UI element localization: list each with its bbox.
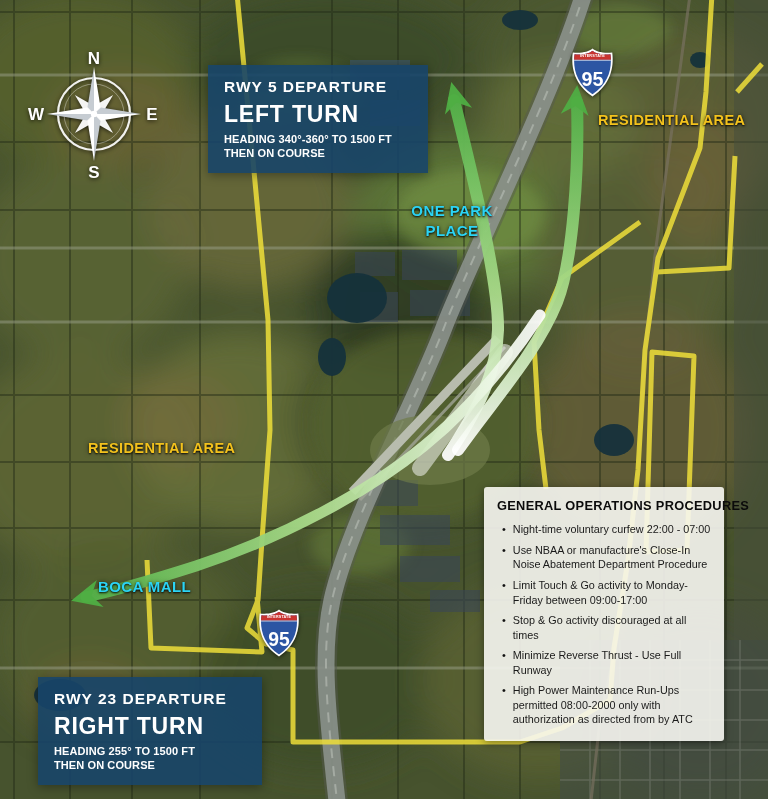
rwy23-heading-instruction: HEADING 255° TO 1500 FT (54, 745, 246, 757)
rwy5-turn-direction: LEFT TURN (224, 101, 412, 128)
compass-south-label: S (88, 163, 99, 182)
compass-north-label: N (88, 49, 100, 68)
rwy5-departure-panel: RWY 5 DEPARTURE LEFT TURN HEADING 340°-3… (208, 65, 428, 173)
route-number: 95 (268, 629, 290, 650)
procedures-title: GENERAL OPERATIONS PROCEDURES (497, 498, 712, 513)
bullet-icon: • (502, 578, 506, 593)
bullet-icon: • (502, 648, 506, 663)
route-number: 95 (582, 68, 604, 90)
boca-mall-label: BOCA MALL (98, 578, 191, 595)
compass-rose: N E S W (19, 39, 169, 189)
bullet-icon: • (502, 522, 506, 537)
procedure-item: • Stop & Go activity discouraged at all … (497, 613, 712, 642)
procedure-item: • Minimize Reverse Thrust - Use Full Run… (497, 648, 712, 677)
residential-area-label-left: RESIDENTIAL AREA (88, 440, 235, 456)
one-park-place-line1: ONE PARK (392, 201, 512, 221)
rwy5-title: RWY 5 DEPARTURE (224, 78, 412, 96)
procedure-text: Use NBAA or manufacture's Close-In Noise… (513, 543, 712, 572)
residential-area-label-right: RESIDENTIAL AREA (598, 112, 745, 128)
bullet-icon: • (502, 543, 506, 558)
compass-east-label: E (146, 105, 157, 124)
procedure-item: • High Power Maintenance Run-Ups permitt… (497, 683, 712, 727)
interstate-95-shield: INTERSTATE 95 (569, 47, 616, 98)
rwy5-heading-instruction: HEADING 340°-360° TO 1500 FT (224, 133, 412, 145)
procedure-item: • Limit Touch & Go activity to Monday-Fr… (497, 578, 712, 607)
one-park-place-label: ONE PARK PLACE (392, 201, 512, 242)
general-operations-procedures-panel: GENERAL OPERATIONS PROCEDURES • Night-ti… (484, 487, 724, 741)
rwy23-departure-panel: RWY 23 DEPARTURE RIGHT TURN HEADING 255°… (38, 677, 262, 785)
one-park-place-line2: PLACE (392, 221, 512, 241)
rwy5-course-instruction: THEN ON COURSE (224, 147, 412, 159)
rwy23-title: RWY 23 DEPARTURE (54, 690, 246, 708)
interstate-95-shield: INTERSTATE 95 (256, 607, 302, 659)
rwy23-course-instruction: THEN ON COURSE (54, 759, 246, 771)
procedure-text: Stop & Go activity discouraged at all ti… (513, 613, 712, 642)
procedure-text: High Power Maintenance Run-Ups permitted… (513, 683, 712, 727)
procedure-item: • Night-time voluntary curfew 22:00 - 07… (497, 522, 712, 537)
procedure-item: • Use NBAA or manufacture's Close-In Noi… (497, 543, 712, 572)
interstate-band-label: INTERSTATE (267, 615, 292, 619)
bullet-icon: • (502, 683, 506, 698)
noise-abatement-map: N E S W INTERSTATE 95 (0, 0, 768, 799)
procedure-text: Minimize Reverse Thrust - Use Full Runwa… (513, 648, 712, 677)
procedure-text: Limit Touch & Go activity to Monday-Frid… (513, 578, 712, 607)
interstate-band-label: INTERSTATE (580, 54, 605, 58)
rwy23-turn-direction: RIGHT TURN (54, 713, 246, 740)
bullet-icon: • (502, 613, 506, 628)
procedure-text: Night-time voluntary curfew 22:00 - 07:0… (513, 522, 710, 537)
procedures-list: • Night-time voluntary curfew 22:00 - 07… (497, 522, 712, 727)
compass-west-label: W (28, 105, 45, 124)
